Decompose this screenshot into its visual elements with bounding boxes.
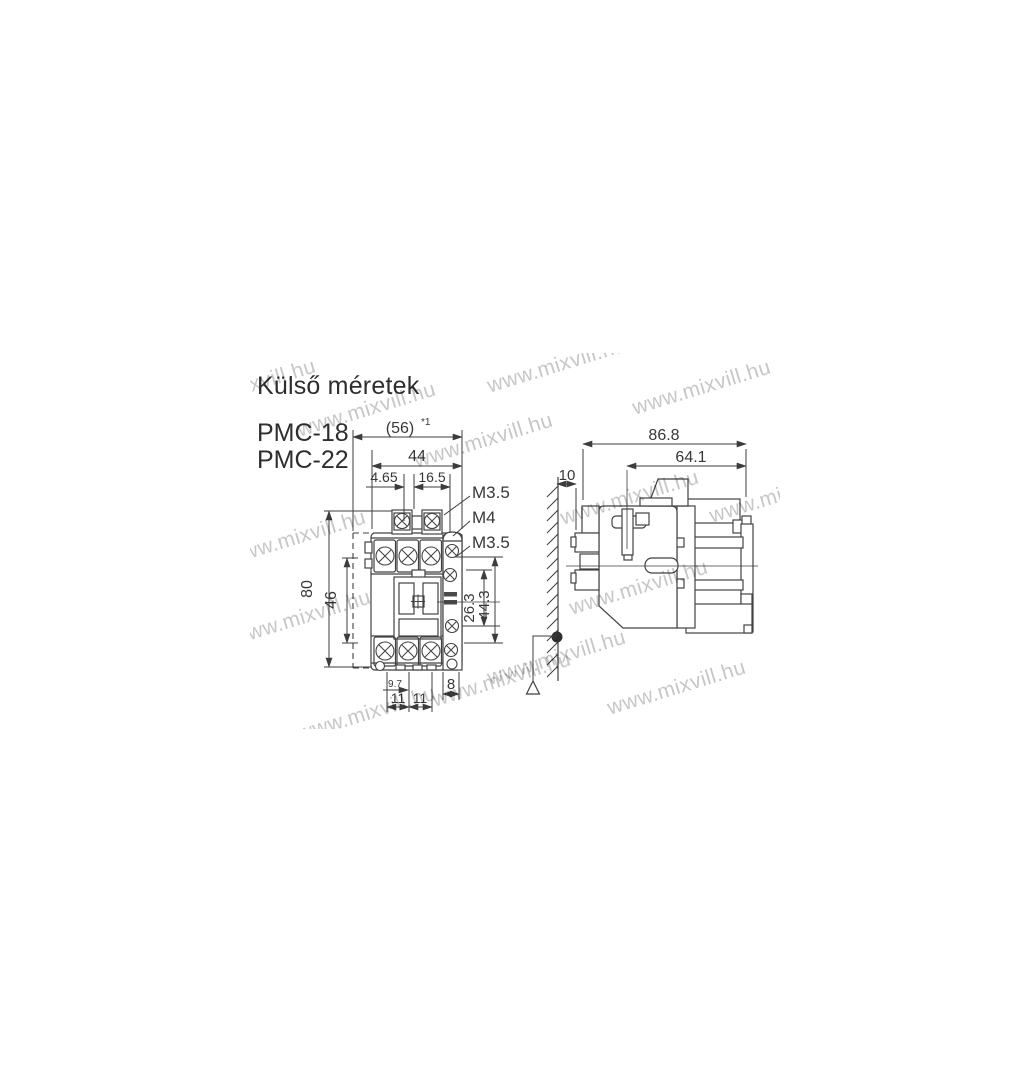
page-title: Külső méretek [257, 372, 419, 401]
dim-height-80: 80 [299, 580, 316, 598]
side-view [566, 479, 758, 633]
main-terminal-row-bottom [374, 637, 442, 671]
label-screw-m4: M4 [472, 508, 496, 527]
technical-drawing: (56) *1 44 4.65 16.5 M3.5 M4 M3.5 80 46 … [0, 0, 1024, 1088]
model-label-pmc22: PMC-22 [257, 446, 349, 475]
plumb-triangle [527, 681, 540, 694]
top-aux-terminals [392, 510, 442, 534]
mounting-hole [376, 662, 385, 671]
dim-v443: 44.3 [476, 590, 493, 619]
front-lugs [571, 506, 599, 590]
dim-overall-width: (56) [386, 420, 414, 437]
dim-overall-width-note: *1 [421, 417, 431, 428]
dim-aux-pitch: 16.5 [418, 469, 445, 485]
contact-window [645, 558, 678, 573]
dim-depth-total: 86.8 [648, 427, 679, 444]
dim-b97: 9.7 [388, 679, 402, 690]
dim-right-width-8: 8 [447, 676, 455, 693]
mid-housing [677, 506, 695, 628]
side-aux-column [443, 532, 462, 670]
dim-aux-offset: 4.65 [370, 469, 397, 485]
dimension-drawing-page: (56) *1 44 4.65 16.5 M3.5 M4 M3.5 80 46 … [0, 0, 1024, 1088]
label-screw-m35-side: M3.5 [472, 533, 510, 552]
front-view [353, 510, 462, 671]
dim-depth-body: 64.1 [675, 449, 706, 466]
dim-pitch-11b: 11 [413, 690, 428, 706]
dim-front-offset: 10 [559, 467, 576, 484]
dim-pitch-11a: 11 [391, 690, 406, 706]
pivot-dot [552, 632, 563, 643]
label-screw-m35-top: M3.5 [472, 483, 510, 502]
dim-height-46: 46 [323, 591, 340, 609]
wall-mount-symbol [527, 477, 563, 694]
wall-hatching [547, 486, 558, 677]
model-label-pmc18: PMC-18 [257, 419, 349, 448]
dim-body-width: 44 [408, 448, 426, 465]
center-panel [394, 570, 441, 639]
